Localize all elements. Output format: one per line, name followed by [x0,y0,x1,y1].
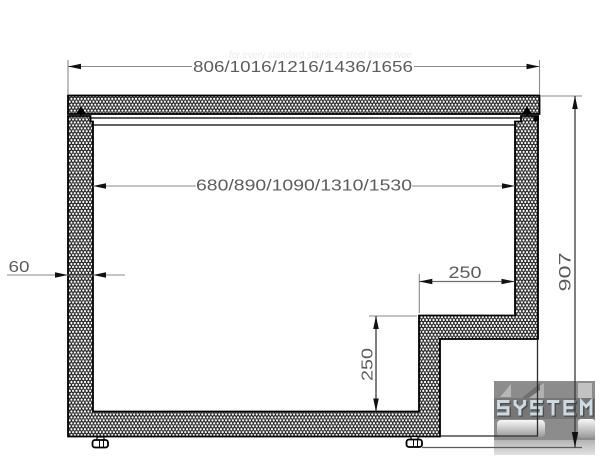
svg-text:250: 250 [360,348,377,381]
svg-text:907: 907 [557,253,575,292]
svg-text:806/1016/1216/1436/1656: 806/1016/1216/1436/1656 [193,59,413,76]
svg-text:250: 250 [449,263,482,282]
svg-text:60: 60 [9,259,30,276]
svg-text:680/890/1090/1310/1530: 680/890/1090/1310/1530 [196,178,412,195]
